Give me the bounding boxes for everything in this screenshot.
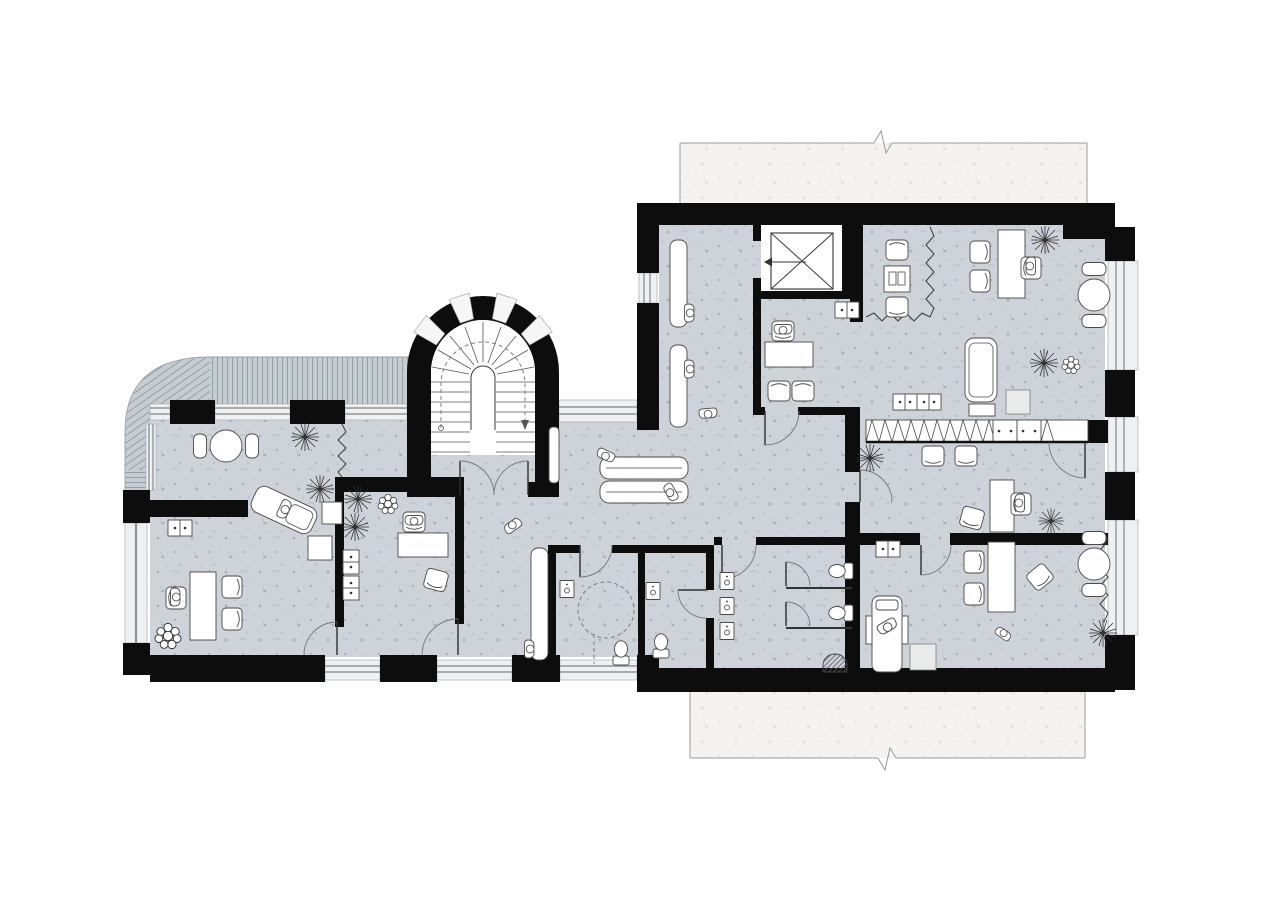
window-band — [437, 660, 512, 680]
floor-plan-image — [0, 0, 1273, 900]
side-table — [884, 266, 910, 292]
side-table — [910, 644, 936, 670]
window-band — [1108, 417, 1138, 472]
window-band — [559, 400, 637, 422]
desk — [765, 342, 813, 367]
radiator — [549, 427, 559, 483]
window-band — [1108, 261, 1138, 370]
desk — [190, 572, 216, 640]
elevator — [761, 225, 842, 291]
wardrobe-run — [866, 420, 1088, 442]
side-table — [308, 536, 332, 560]
floor-plan-page — [0, 0, 1273, 900]
desk — [988, 542, 1015, 612]
urinal-icon — [823, 654, 847, 672]
window-band — [639, 273, 657, 303]
bench — [670, 345, 687, 427]
window-band — [125, 523, 147, 643]
desk — [990, 480, 1014, 532]
massage-table — [866, 596, 908, 672]
desk — [398, 533, 448, 557]
window-band — [146, 424, 156, 490]
window-band — [1108, 520, 1138, 635]
window-band — [325, 660, 380, 680]
side-table — [322, 502, 342, 524]
window-band — [345, 404, 407, 420]
couch — [965, 338, 997, 402]
window-band — [150, 404, 170, 420]
window-band — [215, 404, 290, 420]
side-table — [1006, 390, 1030, 414]
